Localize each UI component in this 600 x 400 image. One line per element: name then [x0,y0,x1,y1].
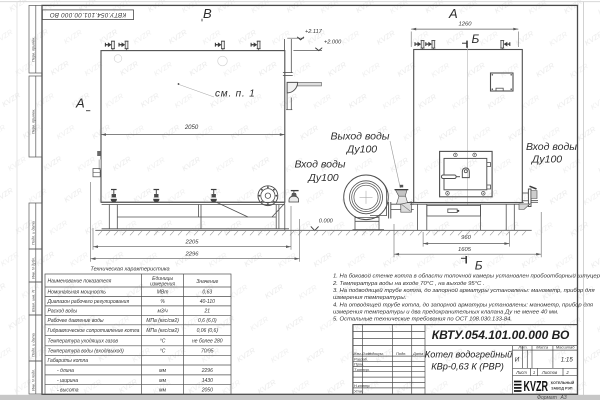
svg-text:2050: 2050 [201,388,213,394]
svg-text:измерения температуры и два пр: измерения температуры и два предохраните… [333,309,559,315]
svg-text:2. Температура воды на входе: 2. Температура воды на входе 70°С , на в… [332,281,485,287]
svg-text:1605: 1605 [458,247,472,253]
svg-text:Диапазон рабочего регулировани: Диапазон рабочего регулирования [47,299,130,305]
svg-text:0.000: 0.000 [319,218,334,224]
svg-text:Инв. N подл.: Инв. N подл. [32,369,36,391]
svg-text:°С: °С [160,349,166,355]
svg-text:2050: 2050 [184,125,199,131]
svg-text:- высота: - высота [57,388,79,394]
svg-text:°С: °С [160,339,166,345]
svg-text:Техническая характеристика: Техническая характеристика [90,267,169,273]
svg-text:N докум.: N докум. [368,351,384,356]
svg-text:Инв. N дубл.: Инв. N дубл. [32,257,36,279]
svg-text:Масштаб: Масштаб [556,344,575,349]
svg-text:Формат: Формат [537,395,557,400]
svg-text:Б: Б [472,32,480,46]
svg-text:Наименование показателя: Наименование показателя [48,279,112,285]
svg-text:м3/ч: м3/ч [158,309,169,315]
svg-text:И: И [515,357,520,364]
svg-text:%: % [160,299,165,305]
svg-text:Масса: Масса [536,344,549,349]
svg-text:измерения: измерения [150,282,175,288]
svg-text:1. На боковой стенке котла в: 1. На боковой стенке котла в области топ… [333,272,600,279]
svg-text:0,6 (6,0): 0,6 (6,0) [198,318,217,324]
svg-text:А3: А3 [560,395,567,400]
svg-text:2296: 2296 [185,251,200,257]
svg-text:Вход воды: Вход воды [295,159,346,171]
svg-text:70/95: 70/95 [201,349,214,355]
svg-text:Ду100: Ду100 [307,172,338,184]
svg-text:Расход воды: Расход воды [48,309,78,315]
svg-text:В: В [203,6,212,21]
svg-text:А: А [448,6,458,21]
svg-text:- ширина: - ширина [57,378,78,384]
svg-text:Лист: Лист [515,370,527,375]
svg-text:Габариты котла: Габариты котла [48,358,89,364]
svg-text:2296: 2296 [201,368,213,374]
svg-text:МПа (кгс/см2): МПа (кгс/см2) [146,318,179,324]
svg-text:Б: Б [475,258,483,272]
svg-text:измерения температуры.: измерения температуры. [333,295,406,301]
svg-text:5. Остальные технические треб: 5. Остальные технические требования по О… [333,316,512,322]
svg-text:21: 21 [204,309,211,315]
svg-text:40-110: 40-110 [200,299,215,305]
svg-text:KVZR: KVZR [524,379,549,395]
svg-text:Листов: Листов [541,370,558,375]
svg-text:Перв. примен.: Перв. примен. [32,37,36,62]
svg-text:Вход воды: Вход воды [526,141,577,153]
svg-text:Температура уходящих газов: Температура уходящих газов [48,339,119,345]
svg-text:Выход воды: Выход воды [330,131,389,143]
svg-text:+2.000: +2.000 [324,40,342,46]
svg-text:1260: 1260 [459,21,473,27]
svg-text:0,63: 0,63 [202,290,212,296]
svg-text:Номинальная мощность: Номинальная мощность [48,290,107,296]
svg-text:1430: 1430 [202,378,213,384]
svg-text:КВТУ.054.101.00.000 ВО: КВТУ.054.101.00.000 ВО [50,11,127,18]
svg-text:Перв. примен.: Перв. примен. [32,109,36,134]
svg-text:Лит.: Лит. [517,344,527,349]
svg-text:2205: 2205 [185,239,200,245]
svg-text:Утв.: Утв. [354,388,363,393]
svg-text:- длина: - длина [57,368,74,374]
svg-text:Дата: Дата [412,351,424,356]
svg-text:Рабочее давление воды: Рабочее давление воды [48,318,104,324]
svg-text:см. п. 1: см. п. 1 [215,89,255,100]
svg-text:КВр-0,63 К (РВР): КВр-0,63 К (РВР) [431,362,504,372]
svg-text:Подп.: Подп. [396,351,406,356]
svg-text:мм: мм [159,378,166,384]
svg-text:МПа (кгс/см2): МПа (кгс/см2) [146,328,179,334]
svg-text:4. На отводящей трубе котла,: 4. На отводящей трубе котла, до запорной… [333,301,594,308]
svg-text:1:15: 1:15 [561,357,574,364]
svg-text:мм: мм [159,368,166,374]
svg-text:Ду100: Ду100 [346,144,377,156]
svg-text:1: 1 [533,370,535,375]
svg-text:Значение: Значение [196,279,218,285]
svg-text:Н.контр.: Н.контр. [354,383,370,388]
svg-text:А: А [75,96,85,111]
svg-text:Подп. и дата: Подп. и дата [32,333,36,357]
svg-text:КВТУ.054.101.00.000 ВО: КВТУ.054.101.00.000 ВО [432,328,570,342]
svg-text:3. На подводящей трубе котла,: 3. На подводящей трубе котла, до запорно… [333,287,595,294]
svg-text:960: 960 [461,235,471,241]
svg-text:Котел водогрейный: Котел водогрейный [425,350,512,360]
svg-text:Взам. инв. N: Взам. инв. N [32,290,36,312]
svg-text:не более 280: не более 280 [192,339,223,345]
svg-text:МВт: МВт [157,290,169,296]
svg-text:Ду100: Ду100 [531,154,562,166]
svg-text:КОТЕЛЬНЫЙ: КОТЕЛЬНЫЙ [551,381,575,385]
svg-text:Подп. и дата: Подп. и дата [32,221,36,245]
svg-text:0,06 (0,6): 0,06 (0,6) [197,328,219,334]
svg-text:мм: мм [159,388,166,394]
svg-text:Температура воды (вход/выход): Температура воды (вход/выход) [48,349,125,355]
svg-text:ЗАВОД РЭП: ЗАВОД РЭП [551,386,573,390]
svg-text:Гидравлическое сопротивление к: Гидравлическое сопротивление котла [48,328,140,334]
svg-text:+2.117: +2.117 [305,29,323,35]
svg-text:Т.контр.: Т.контр. [354,367,370,372]
